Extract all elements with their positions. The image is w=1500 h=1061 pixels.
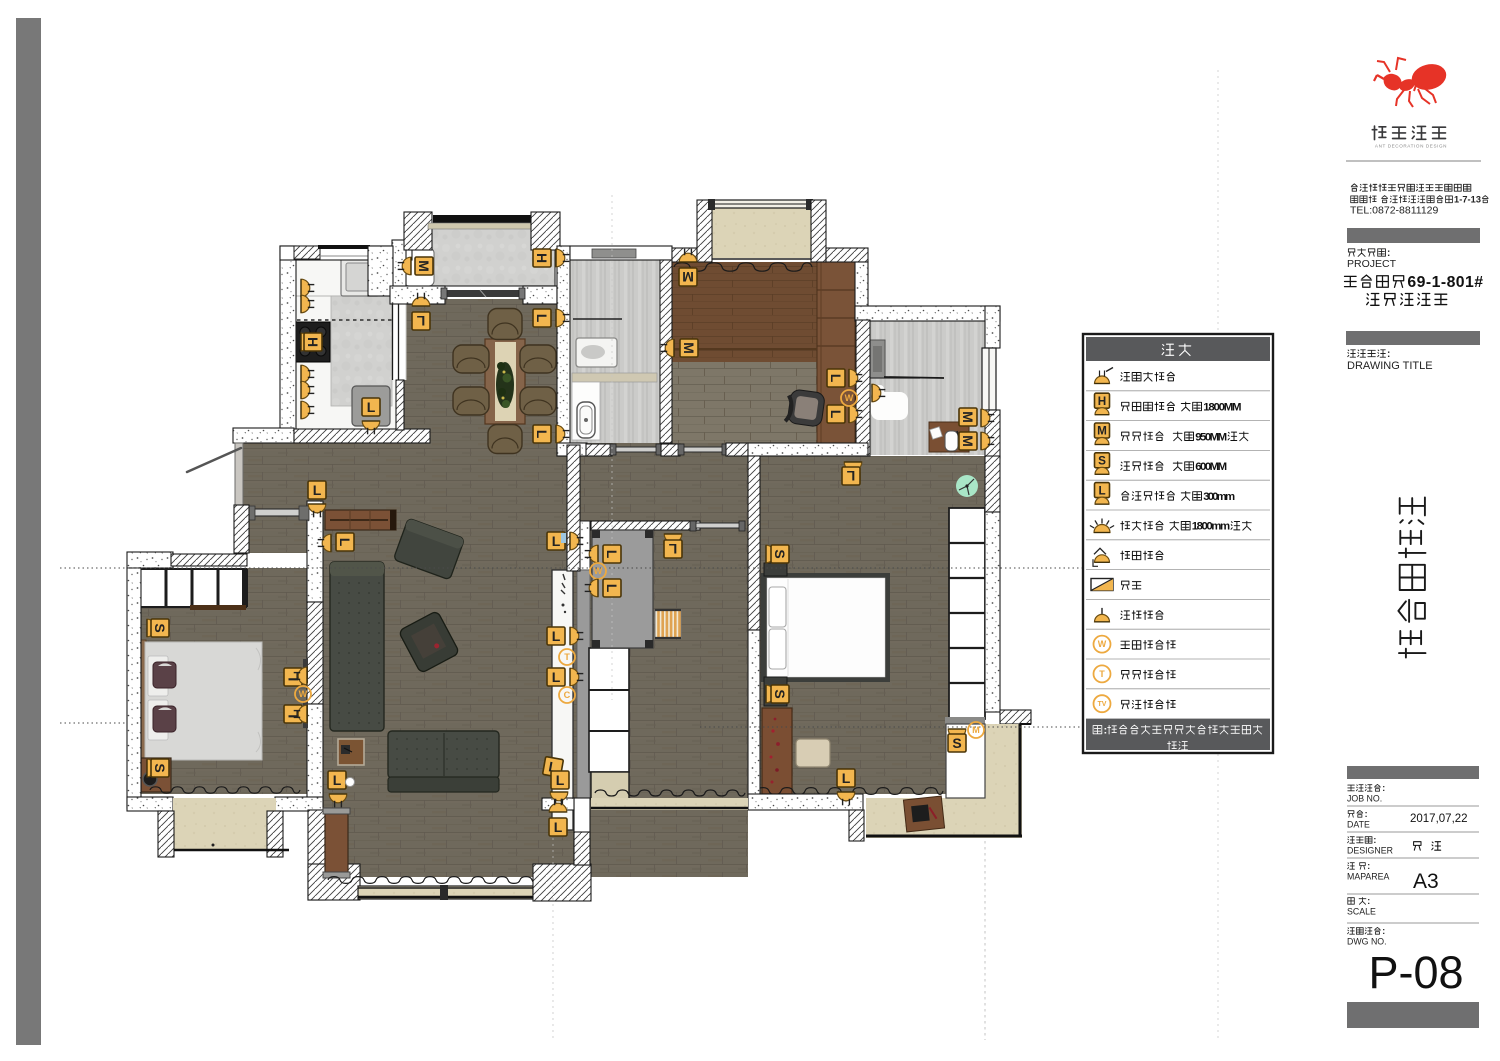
- svg-text::: :: [1104, 725, 1108, 737]
- svg-text:L: L: [828, 410, 844, 419]
- svg-text::: :: [1387, 349, 1390, 360]
- svg-text:S: S: [1098, 455, 1106, 468]
- svg-text:S: S: [772, 549, 788, 558]
- svg-text:H: H: [1098, 395, 1106, 408]
- svg-text:C: C: [564, 690, 571, 700]
- svg-text:L: L: [1098, 484, 1105, 497]
- svg-text:600MM: 600MM: [1195, 461, 1227, 473]
- svg-text:L: L: [828, 374, 844, 383]
- svg-text:MAPAREA: MAPAREA: [1347, 872, 1389, 882]
- svg-text::: :: [1382, 783, 1385, 793]
- svg-text:M: M: [681, 342, 697, 354]
- svg-text:M: M: [972, 725, 980, 735]
- svg-text:L: L: [313, 482, 322, 498]
- svg-text:DRAWING TITLE: DRAWING TITLE: [1347, 360, 1433, 372]
- svg-text:L: L: [552, 628, 561, 644]
- svg-text::: :: [1373, 835, 1376, 845]
- svg-text:DATE: DATE: [1347, 820, 1370, 830]
- svg-text:2017,07,22: 2017,07,22: [1410, 813, 1468, 825]
- svg-text:S: S: [952, 735, 961, 751]
- svg-text:L: L: [604, 550, 620, 559]
- svg-text:M: M: [960, 435, 976, 447]
- svg-text:S: S: [152, 623, 168, 632]
- svg-text::: :: [1382, 926, 1385, 936]
- svg-text:1-7-13: 1-7-13: [1454, 195, 1481, 205]
- svg-text:1800mm: 1800mm: [1192, 521, 1230, 533]
- svg-text:L: L: [604, 584, 620, 593]
- svg-text:L: L: [846, 468, 855, 484]
- svg-text:L: L: [556, 772, 565, 788]
- svg-text:L: L: [534, 314, 550, 323]
- svg-text:DWG NO.: DWG NO.: [1347, 937, 1387, 947]
- svg-text::: :: [1367, 896, 1370, 906]
- svg-text:S: S: [772, 689, 788, 698]
- svg-text:300mm: 300mm: [1203, 491, 1235, 503]
- svg-text:L: L: [842, 770, 851, 786]
- svg-text:L: L: [668, 541, 677, 557]
- svg-text:W: W: [1098, 639, 1107, 649]
- svg-text:H: H: [534, 253, 550, 263]
- svg-text:M: M: [960, 411, 976, 423]
- svg-text:L: L: [552, 669, 561, 685]
- svg-text:P-08: P-08: [1368, 947, 1463, 998]
- svg-text:1800MM: 1800MM: [1203, 402, 1241, 414]
- svg-text:W: W: [299, 689, 308, 699]
- svg-text:T: T: [564, 652, 570, 662]
- svg-text::: :: [1365, 809, 1368, 819]
- svg-text:JOB NO.: JOB NO.: [1347, 794, 1382, 804]
- svg-text:L: L: [337, 538, 353, 547]
- svg-text:L: L: [416, 313, 425, 329]
- svg-text:W: W: [594, 566, 603, 576]
- svg-text:950MM: 950MM: [1195, 431, 1227, 443]
- svg-text:M: M: [682, 269, 694, 285]
- svg-text:S: S: [152, 763, 168, 772]
- svg-text:L: L: [367, 399, 376, 415]
- svg-text:TEL:0872-8811129: TEL:0872-8811129: [1350, 205, 1439, 217]
- svg-text:ANT DECORATION DESIGN: ANT DECORATION DESIGN: [1375, 144, 1447, 149]
- svg-text:M: M: [1097, 425, 1107, 438]
- svg-text:T: T: [1099, 669, 1105, 679]
- svg-text:M: M: [416, 260, 432, 272]
- svg-text:W: W: [845, 393, 854, 403]
- svg-text:L: L: [333, 772, 342, 788]
- svg-text:PROJECT: PROJECT: [1347, 258, 1397, 270]
- svg-text:SCALE: SCALE: [1347, 907, 1376, 917]
- svg-text::: :: [1367, 861, 1370, 871]
- svg-text:DESIGNER: DESIGNER: [1347, 846, 1393, 856]
- svg-text:L: L: [554, 819, 563, 835]
- svg-text:69-1-801#: 69-1-801#: [1407, 274, 1483, 291]
- svg-text:L: L: [534, 430, 550, 439]
- svg-text:A3: A3: [1413, 870, 1439, 893]
- svg-text:L: L: [552, 533, 561, 549]
- svg-text:TV: TV: [1098, 701, 1107, 708]
- svg-text:H: H: [305, 337, 321, 347]
